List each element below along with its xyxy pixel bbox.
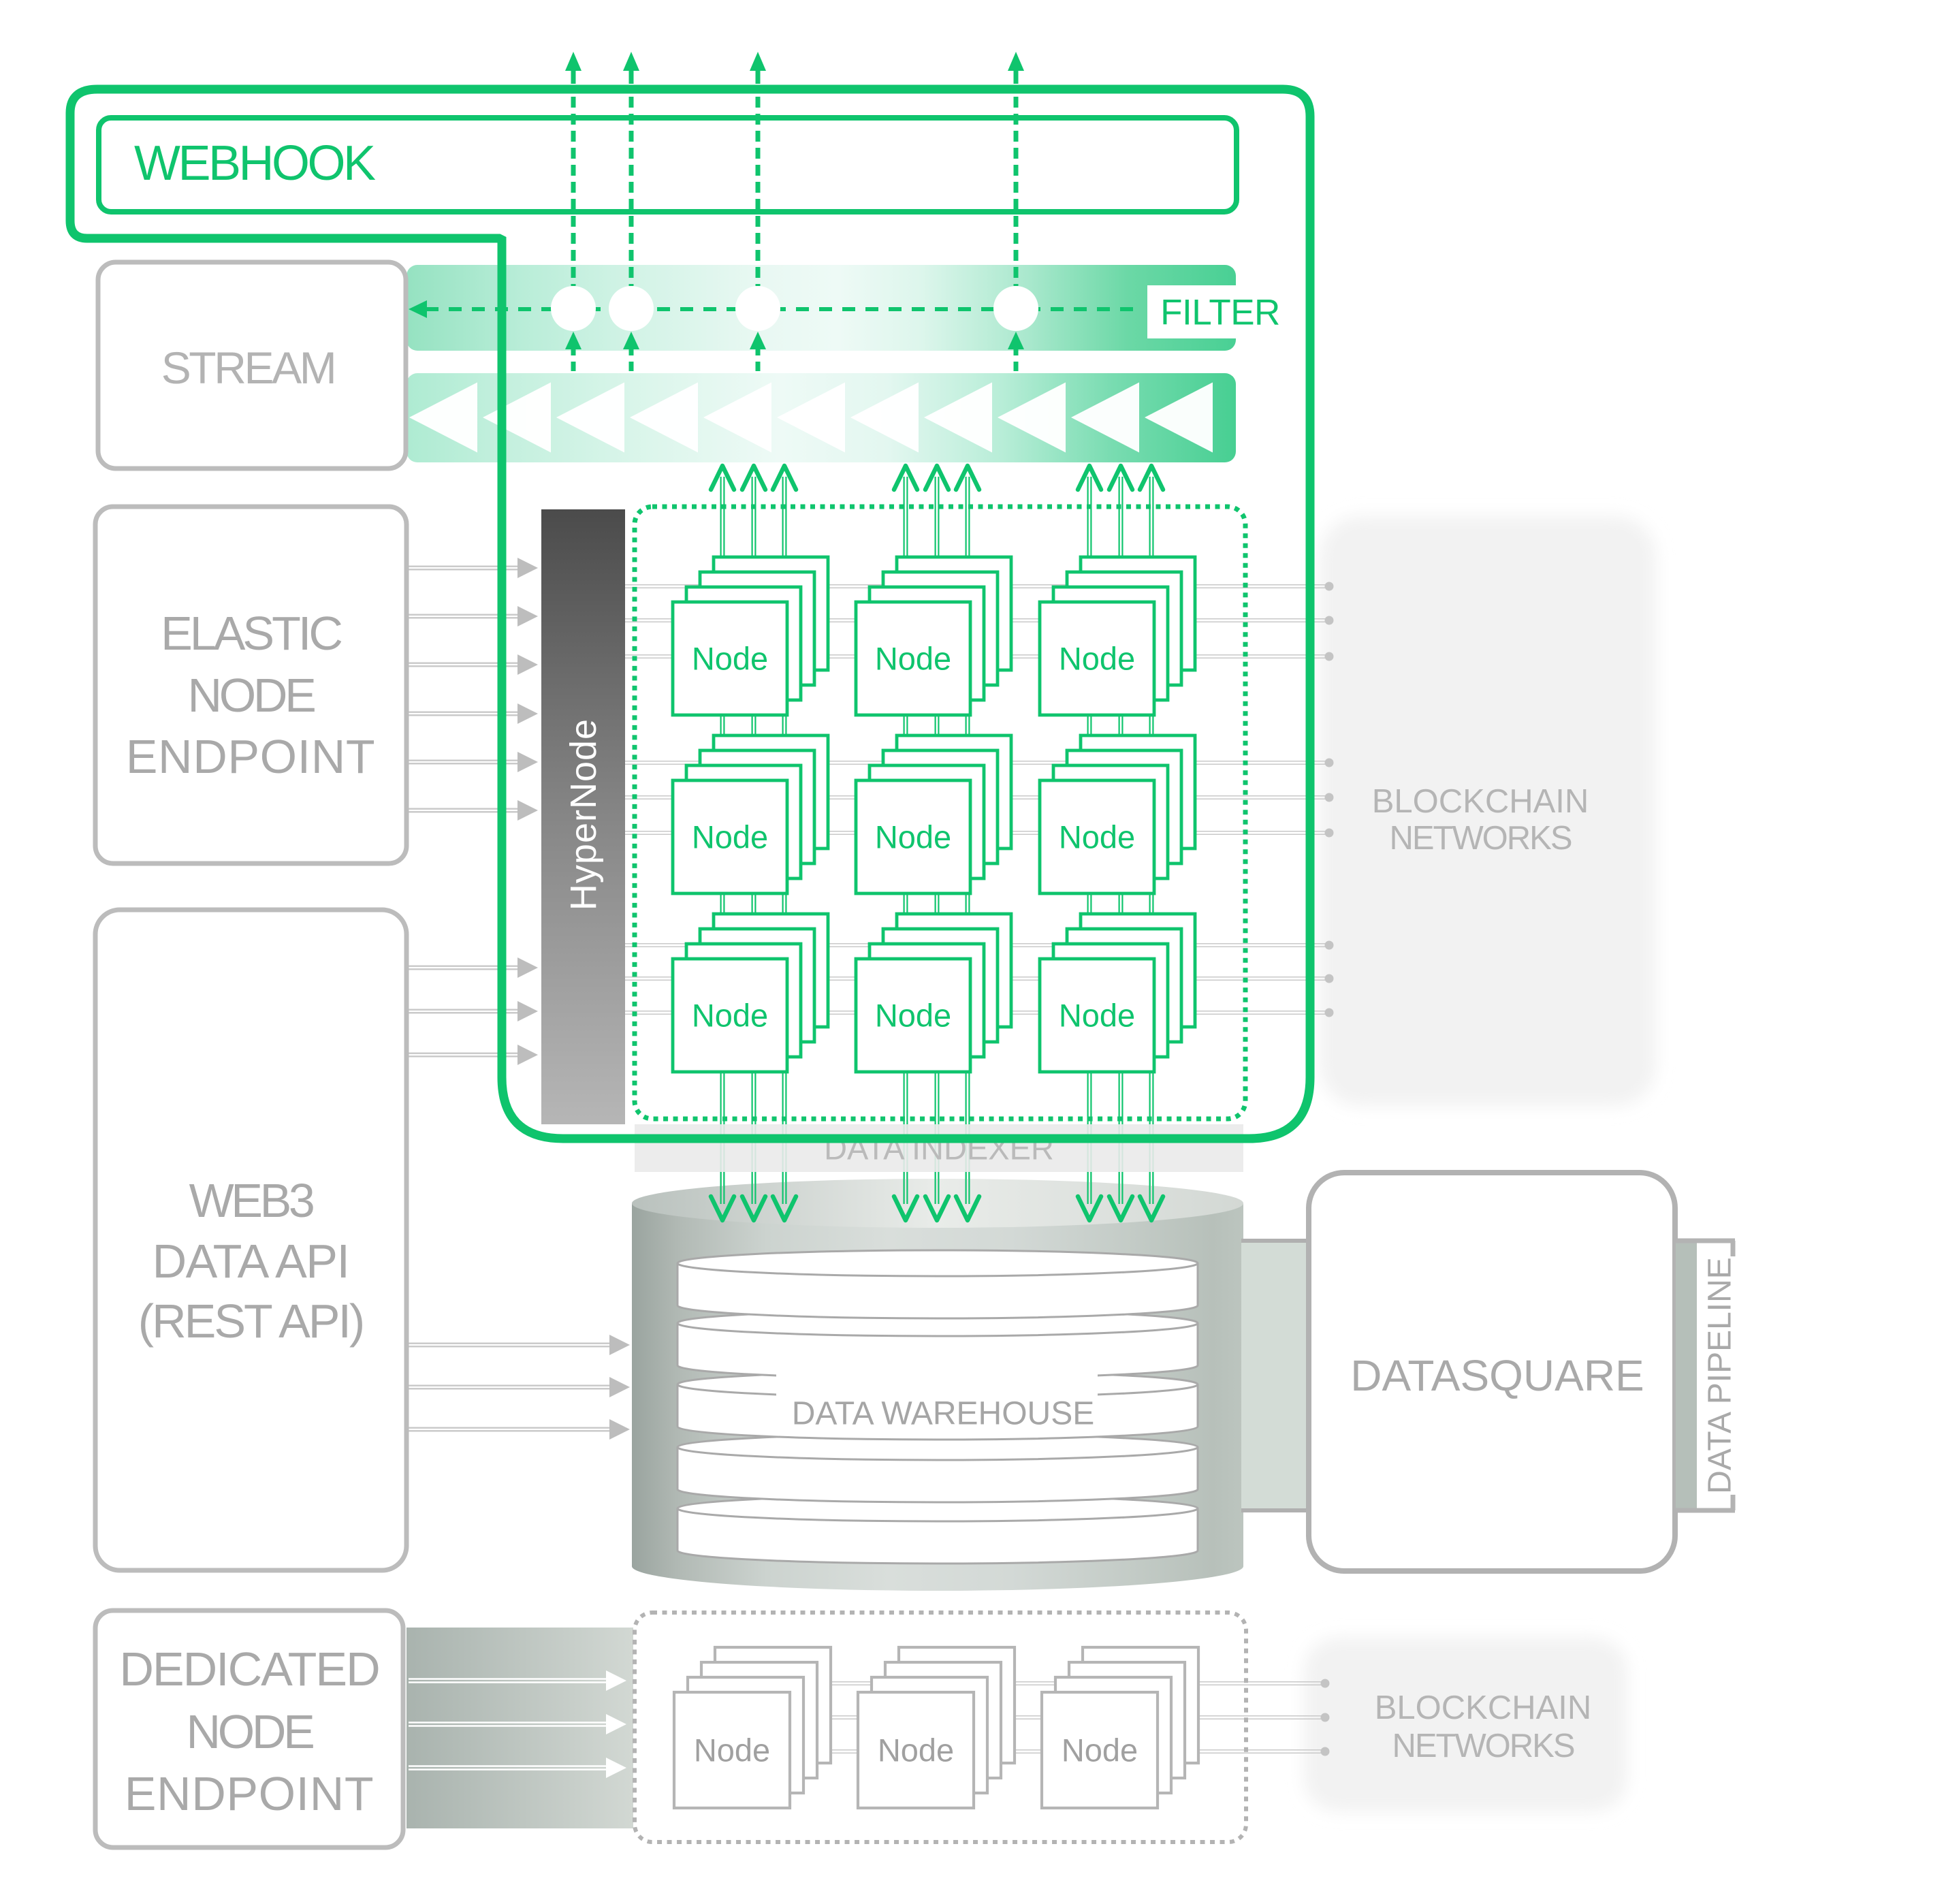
svg-text:Node: Node (1059, 641, 1135, 677)
svg-text:STREAM: STREAM (161, 343, 335, 393)
svg-text:HyperNode: HyperNode (563, 718, 604, 910)
svg-text:DEDICATED: DEDICATED (119, 1643, 379, 1696)
svg-text:ELASTIC: ELASTIC (161, 607, 341, 660)
svg-text:Node: Node (692, 998, 768, 1034)
svg-text:Node: Node (1059, 819, 1135, 855)
svg-text:(REST API): (REST API) (138, 1295, 363, 1348)
svg-text:Node: Node (875, 998, 951, 1034)
svg-text:Node: Node (875, 819, 951, 855)
svg-text:WEB3: WEB3 (189, 1174, 313, 1227)
svg-text:DATA PIPELINE: DATA PIPELINE (1702, 1257, 1738, 1494)
svg-text:DATASQUARE: DATASQUARE (1350, 1351, 1644, 1400)
svg-text:DATA WAREHOUSE: DATA WAREHOUSE (792, 1396, 1095, 1432)
svg-text:BLOCKCHAIN: BLOCKCHAIN (1372, 783, 1589, 820)
svg-text:NETWORKS: NETWORKS (1389, 820, 1571, 857)
svg-text:NODE: NODE (186, 1705, 313, 1758)
svg-text:NETWORKS: NETWORKS (1392, 1728, 1574, 1764)
svg-text:Node: Node (692, 641, 768, 677)
svg-text:Node: Node (875, 641, 951, 677)
svg-text:Node: Node (1062, 1732, 1138, 1768)
svg-text:Node: Node (878, 1732, 954, 1768)
svg-text:ENDPOINT: ENDPOINT (125, 1767, 375, 1820)
svg-text:BLOCKCHAIN: BLOCKCHAIN (1375, 1689, 1592, 1726)
svg-text:Node: Node (694, 1732, 770, 1768)
svg-text:Node: Node (692, 819, 768, 855)
svg-text:DATA API: DATA API (153, 1235, 349, 1288)
svg-text:WEBHOOK: WEBHOOK (134, 136, 376, 191)
svg-text:FILTER: FILTER (1160, 293, 1280, 333)
svg-text:NODE: NODE (187, 669, 315, 722)
svg-text:Node: Node (1059, 998, 1135, 1034)
svg-text:ENDPOINT: ENDPOINT (126, 730, 376, 783)
